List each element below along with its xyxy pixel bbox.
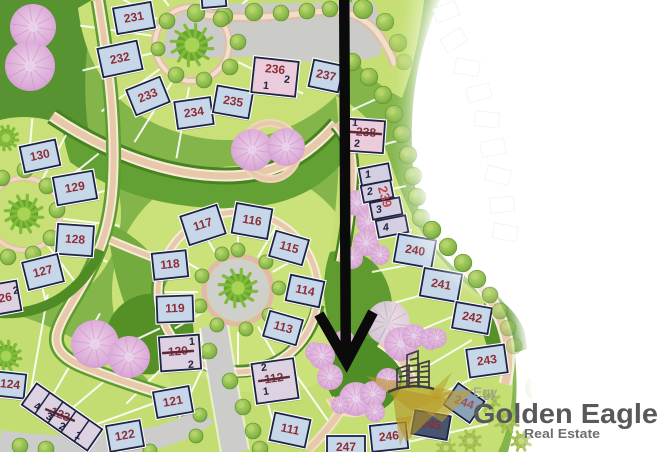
svg-text:2: 2 bbox=[354, 138, 361, 150]
svg-text:236: 236 bbox=[264, 61, 286, 77]
svg-text:118: 118 bbox=[160, 256, 181, 272]
svg-text:Golden Eagle: Golden Eagle bbox=[473, 398, 658, 429]
svg-text:1: 1 bbox=[189, 336, 196, 348]
svg-text:247: 247 bbox=[336, 440, 356, 452]
svg-text:1: 1 bbox=[352, 117, 359, 129]
svg-text:128: 128 bbox=[65, 231, 86, 246]
svg-text:124: 124 bbox=[0, 376, 21, 392]
svg-text:2: 2 bbox=[188, 359, 195, 371]
svg-text:Real Estate: Real Estate bbox=[524, 426, 600, 441]
svg-text:243: 243 bbox=[476, 352, 498, 369]
svg-text:119: 119 bbox=[165, 301, 185, 316]
svg-text:246: 246 bbox=[378, 428, 400, 444]
svg-text:234: 234 bbox=[183, 104, 205, 121]
